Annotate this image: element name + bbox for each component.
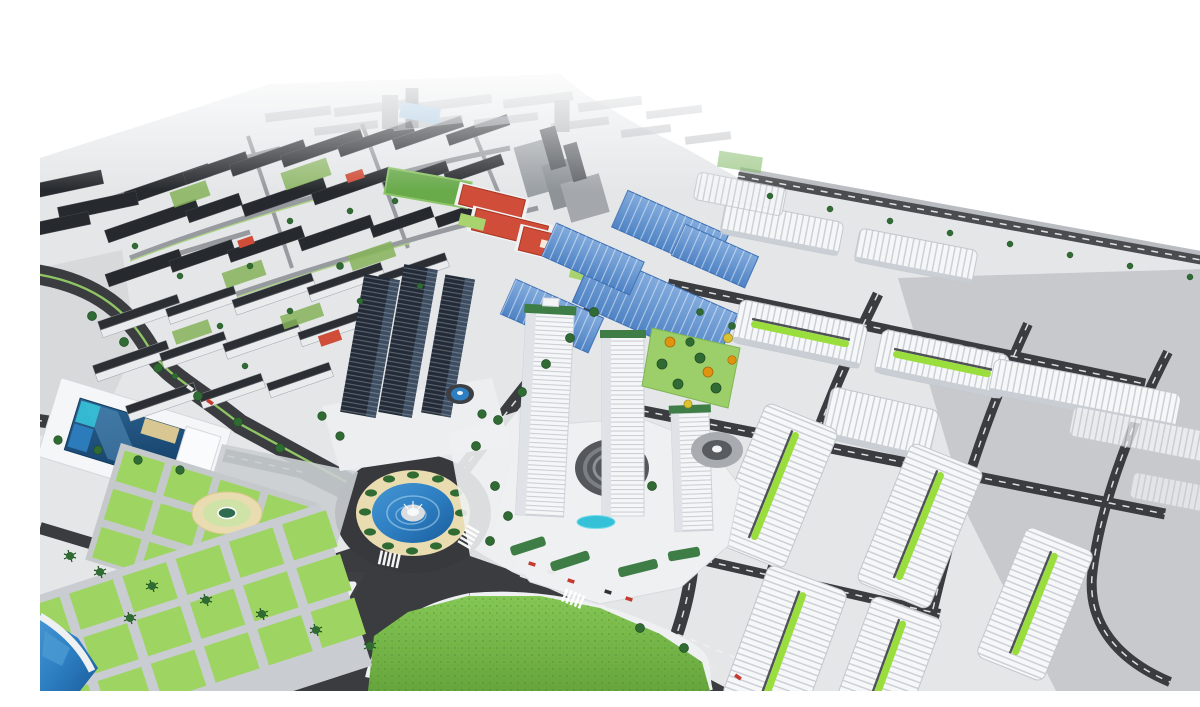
- swimming-pool: [577, 516, 615, 529]
- white-tower-2: [600, 330, 646, 516]
- emblem: [218, 508, 236, 519]
- navy-base-fountain: [446, 384, 474, 404]
- white-tower-3: [669, 404, 715, 531]
- masterplan-render: Urban master plan – 3D aerial rendering: [40, 16, 1200, 691]
- fountain-jet: [407, 508, 419, 516]
- horizon-fade: [40, 56, 1200, 191]
- small-round-plaza: [691, 432, 743, 468]
